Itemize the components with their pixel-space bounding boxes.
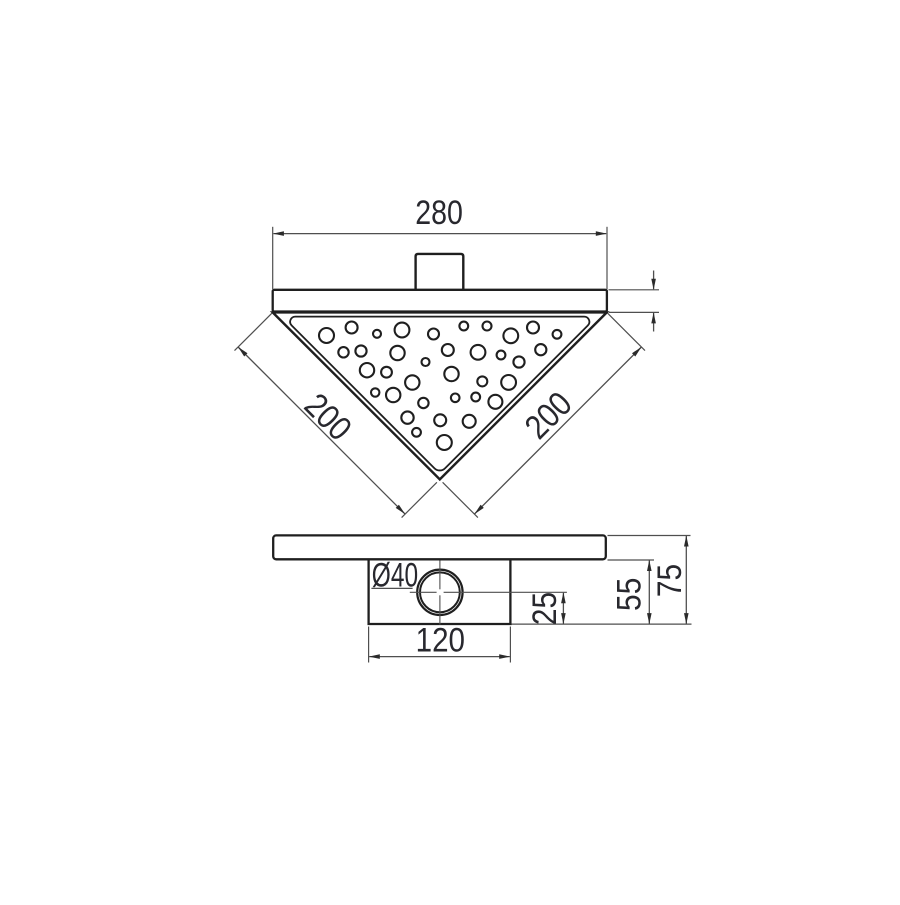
svg-text:55: 55 — [610, 578, 648, 611]
svg-text:200: 200 — [297, 386, 359, 448]
svg-text:75: 75 — [650, 564, 688, 597]
svg-text:25: 25 — [525, 592, 563, 625]
svg-text:120: 120 — [416, 621, 465, 659]
svg-text:280: 280 — [415, 194, 463, 232]
